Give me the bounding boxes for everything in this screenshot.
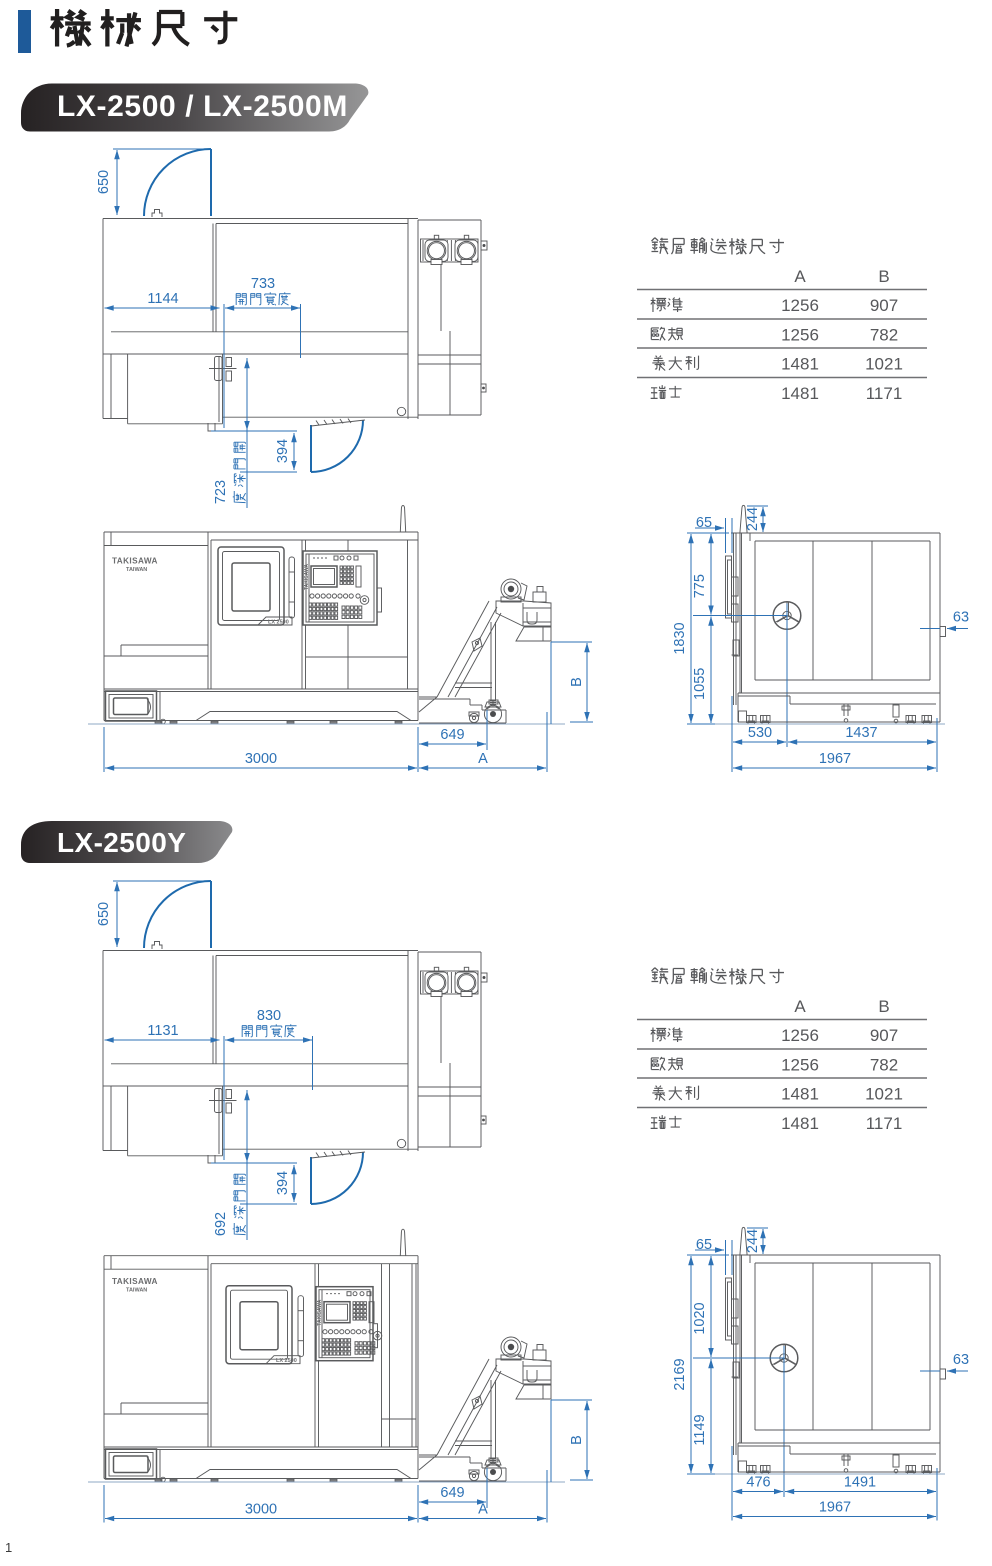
svg-text:2169: 2169: [672, 1358, 688, 1390]
svg-text:476: 476: [746, 1475, 770, 1491]
svg-text:63: 63: [953, 1352, 969, 1368]
svg-text:1967: 1967: [819, 1500, 851, 1516]
svg-text:1149: 1149: [692, 1414, 708, 1445]
svg-text:1491: 1491: [844, 1475, 876, 1491]
svg-text:1020: 1020: [692, 1302, 708, 1334]
svg-text:244: 244: [745, 1229, 761, 1253]
svg-text:65: 65: [696, 1237, 712, 1253]
